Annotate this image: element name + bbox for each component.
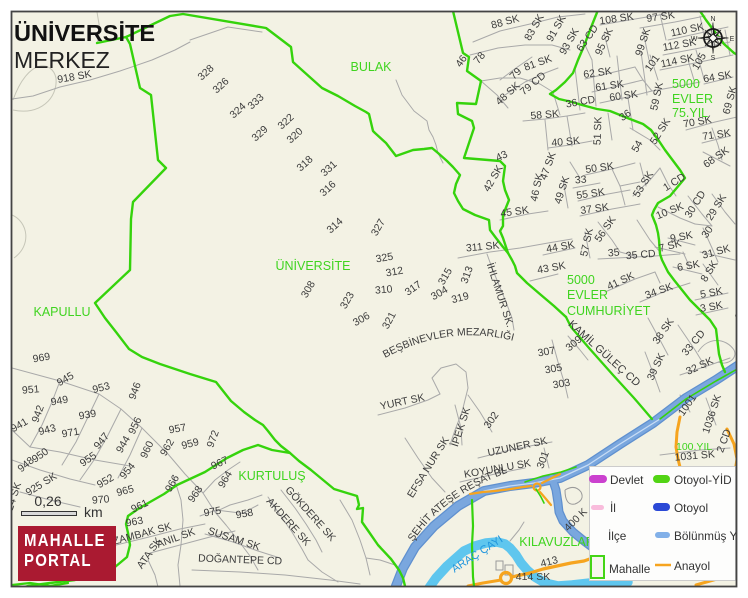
svg-text:İlçe: İlçe [608, 529, 627, 543]
svg-text:EVLER: EVLER [567, 288, 608, 302]
svg-text:414 SK: 414 SK [516, 571, 550, 583]
svg-text:W: W [691, 36, 698, 43]
svg-text:KILAVUZLAR: KILAVUZLAR [519, 535, 595, 549]
svg-text:5000: 5000 [567, 273, 595, 287]
svg-text:E: E [730, 36, 735, 43]
svg-text:Otoyol-YİD: Otoyol-YİD [674, 473, 732, 487]
svg-text:km: km [84, 504, 103, 520]
svg-text:Otoyol: Otoyol [674, 501, 708, 515]
svg-text:51 SK: 51 SK [592, 116, 605, 145]
svg-text:Anayol: Anayol [674, 559, 710, 573]
svg-text:MAHALLE: MAHALLE [24, 531, 106, 550]
svg-text:Bölünmüş Y: Bölünmüş Y [674, 529, 738, 543]
svg-text:İl: İl [610, 501, 616, 515]
svg-text:100.YIL: 100.YIL [676, 441, 712, 453]
svg-text:MERKEZ: MERKEZ [14, 47, 110, 73]
svg-text:5000: 5000 [672, 77, 700, 91]
svg-text:S: S [711, 55, 716, 62]
svg-text:0,26: 0,26 [34, 493, 61, 509]
svg-text:N: N [710, 16, 715, 23]
svg-text:Devlet: Devlet [610, 473, 644, 487]
svg-text:PORTAL: PORTAL [24, 551, 92, 570]
svg-text:35: 35 [607, 247, 620, 260]
svg-text:58 SK: 58 SK [530, 108, 560, 122]
svg-text:KURTULUŞ: KURTULUŞ [238, 469, 305, 483]
svg-text:310: 310 [374, 283, 393, 296]
svg-text:40 SK: 40 SK [551, 135, 581, 149]
svg-text:ÜNİVERSİTE: ÜNİVERSİTE [275, 259, 350, 273]
svg-text:EVLER: EVLER [672, 92, 713, 106]
svg-text:ÜNİVERSİTE: ÜNİVERSİTE [14, 20, 155, 46]
svg-text:KAPULLU: KAPULLU [34, 305, 91, 319]
svg-text:75.YIL: 75.YIL [672, 106, 708, 120]
svg-text:Mahalle: Mahalle [609, 562, 651, 576]
svg-text:951: 951 [21, 383, 40, 396]
svg-text:BULAK: BULAK [351, 60, 393, 74]
svg-text:33: 33 [574, 174, 587, 187]
svg-text:CUMHURİYET: CUMHURİYET [567, 304, 651, 318]
